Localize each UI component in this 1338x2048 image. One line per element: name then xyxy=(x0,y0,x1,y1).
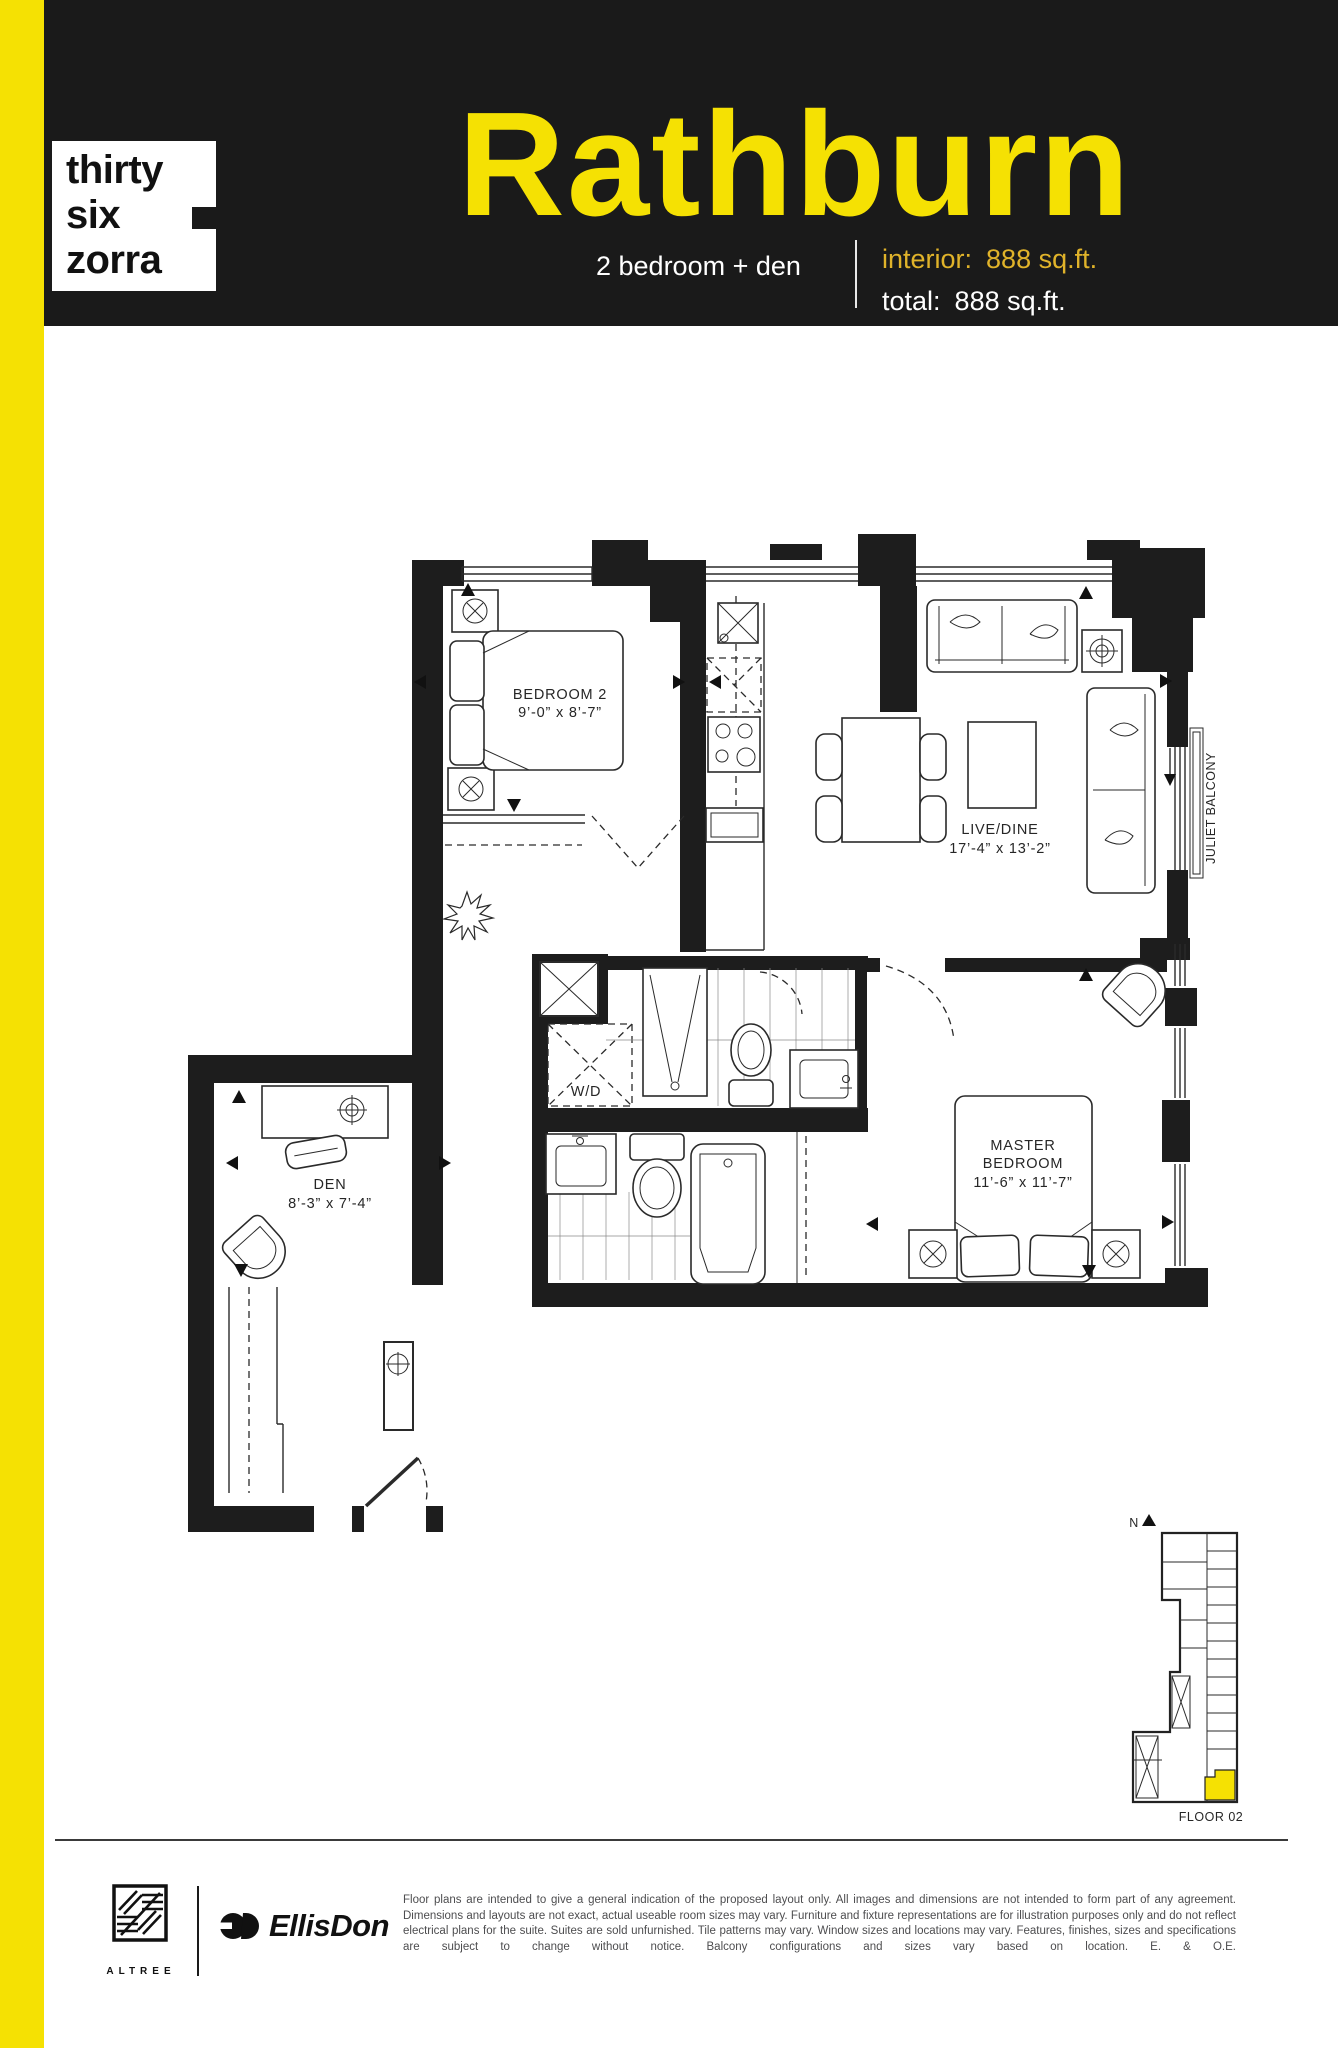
bedroom2-dims: 9’-0” x 8’-7” xyxy=(518,705,602,721)
logo-text: thirty six zorra xyxy=(66,148,163,283)
logo-line-1: thirty xyxy=(66,148,163,193)
logo-notch xyxy=(192,207,216,229)
master-furniture: MASTER BEDROOM 11’-6” x 11’-7” xyxy=(886,953,1175,1282)
interior-label: interior: xyxy=(882,244,972,275)
thirty-six-zorra-logo: thirty six zorra xyxy=(52,141,216,291)
header-divider xyxy=(855,240,857,308)
juliet-balcony-label: JULIET BALCONY xyxy=(1204,752,1218,864)
logo-line-3: zorra xyxy=(66,238,163,283)
plant-icon xyxy=(444,892,493,940)
bedroom2-label: BEDROOM 2 xyxy=(513,687,607,703)
total-label: total: xyxy=(882,286,941,317)
den-dims: 8’-3” x 7’-4” xyxy=(288,1196,372,1212)
master-dims: 11’-6” x 11’-7” xyxy=(973,1175,1072,1191)
den-furniture: DEN 8’-3” x 7’-4” xyxy=(219,1086,427,1506)
laundry: W/D xyxy=(540,962,632,1106)
north-arrow-icon xyxy=(1142,1514,1156,1526)
master-label-2: BEDROOM xyxy=(983,1156,1064,1172)
north-label: N xyxy=(1129,1516,1139,1530)
interior-area: interior:888 sq.ft. xyxy=(882,244,1097,275)
total-value: 888 sq.ft. xyxy=(955,286,1066,316)
total-area: total:888 sq.ft. xyxy=(882,286,1066,317)
livedine-label: LIVE/DINE xyxy=(961,822,1038,838)
keyplan: N FLOOR 02 xyxy=(1129,1514,1243,1824)
accent-stripe xyxy=(0,0,44,2048)
bathroom-1 xyxy=(606,968,858,1108)
livedine-dims: 17’-4” x 13’-2” xyxy=(949,841,1050,857)
page-title: Rathburn xyxy=(458,80,1132,250)
bathroom-2 xyxy=(546,1132,806,1284)
floor-label: FLOOR 02 xyxy=(1179,1810,1243,1824)
bedroom2-furniture: BEDROOM 2 9’-0” x 8’-7” xyxy=(443,590,684,940)
interior-value: 888 sq.ft. xyxy=(986,244,1097,274)
unit-type-subtitle: 2 bedroom + den xyxy=(596,251,801,282)
den-label: DEN xyxy=(313,1177,346,1193)
master-label-1: MASTER xyxy=(990,1138,1055,1154)
kitchen xyxy=(706,596,764,950)
logo-line-2: six xyxy=(66,193,163,238)
floorplan-sheet: thirty six zorra Rathburn 2 bedroom + de… xyxy=(0,0,1338,2048)
wd-label: W/D xyxy=(571,1084,602,1100)
